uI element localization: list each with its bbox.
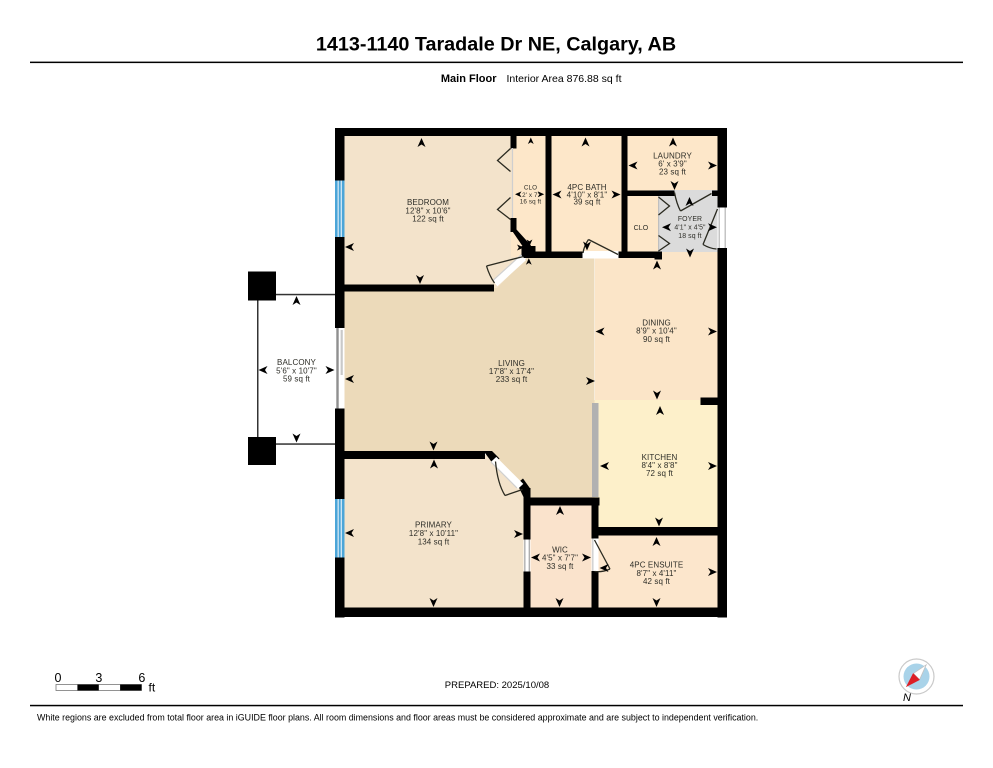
svg-text:23 sq ft: 23 sq ft <box>659 168 687 177</box>
svg-text:18 sq ft: 18 sq ft <box>678 233 701 240</box>
svg-text:1413-1140 Taradale Dr NE, Calg: 1413-1140 Taradale Dr NE, Calgary, AB <box>316 34 676 56</box>
svg-text:CLO: CLO <box>524 184 537 191</box>
svg-text:CLO: CLO <box>634 225 649 232</box>
svg-text:3: 3 <box>95 671 102 685</box>
svg-text:233 sq ft: 233 sq ft <box>496 375 528 384</box>
svg-text:90 sq ft: 90 sq ft <box>643 335 671 344</box>
svg-text:39 sq ft: 39 sq ft <box>573 198 601 207</box>
svg-text:72 sq ft: 72 sq ft <box>646 469 674 478</box>
svg-text:White regions are excluded fro: White regions are excluded from total fl… <box>37 713 758 723</box>
svg-text:6: 6 <box>138 671 145 685</box>
svg-text:33 sq ft: 33 sq ft <box>546 562 574 571</box>
svg-text:PREPARED: 2025/10/08: PREPARED: 2025/10/08 <box>445 680 549 691</box>
svg-text:16 sq ft: 16 sq ft <box>520 198 542 205</box>
svg-text:N: N <box>903 692 911 704</box>
svg-text:122 sq ft: 122 sq ft <box>412 215 444 224</box>
svg-text:0: 0 <box>55 671 62 685</box>
svg-text:42 sq ft: 42 sq ft <box>643 577 671 586</box>
svg-text:59 sq ft: 59 sq ft <box>283 375 311 384</box>
svg-text:4'1" x 4'5": 4'1" x 4'5" <box>674 225 706 232</box>
svg-text:ft: ft <box>149 681 156 695</box>
svg-text:Main Floor: Main Floor <box>441 73 497 85</box>
svg-text:FOYER: FOYER <box>678 216 702 223</box>
svg-text:134 sq ft: 134 sq ft <box>418 537 450 546</box>
svg-text:Interior Area 876.88 sq ft: Interior Area 876.88 sq ft <box>507 73 622 85</box>
